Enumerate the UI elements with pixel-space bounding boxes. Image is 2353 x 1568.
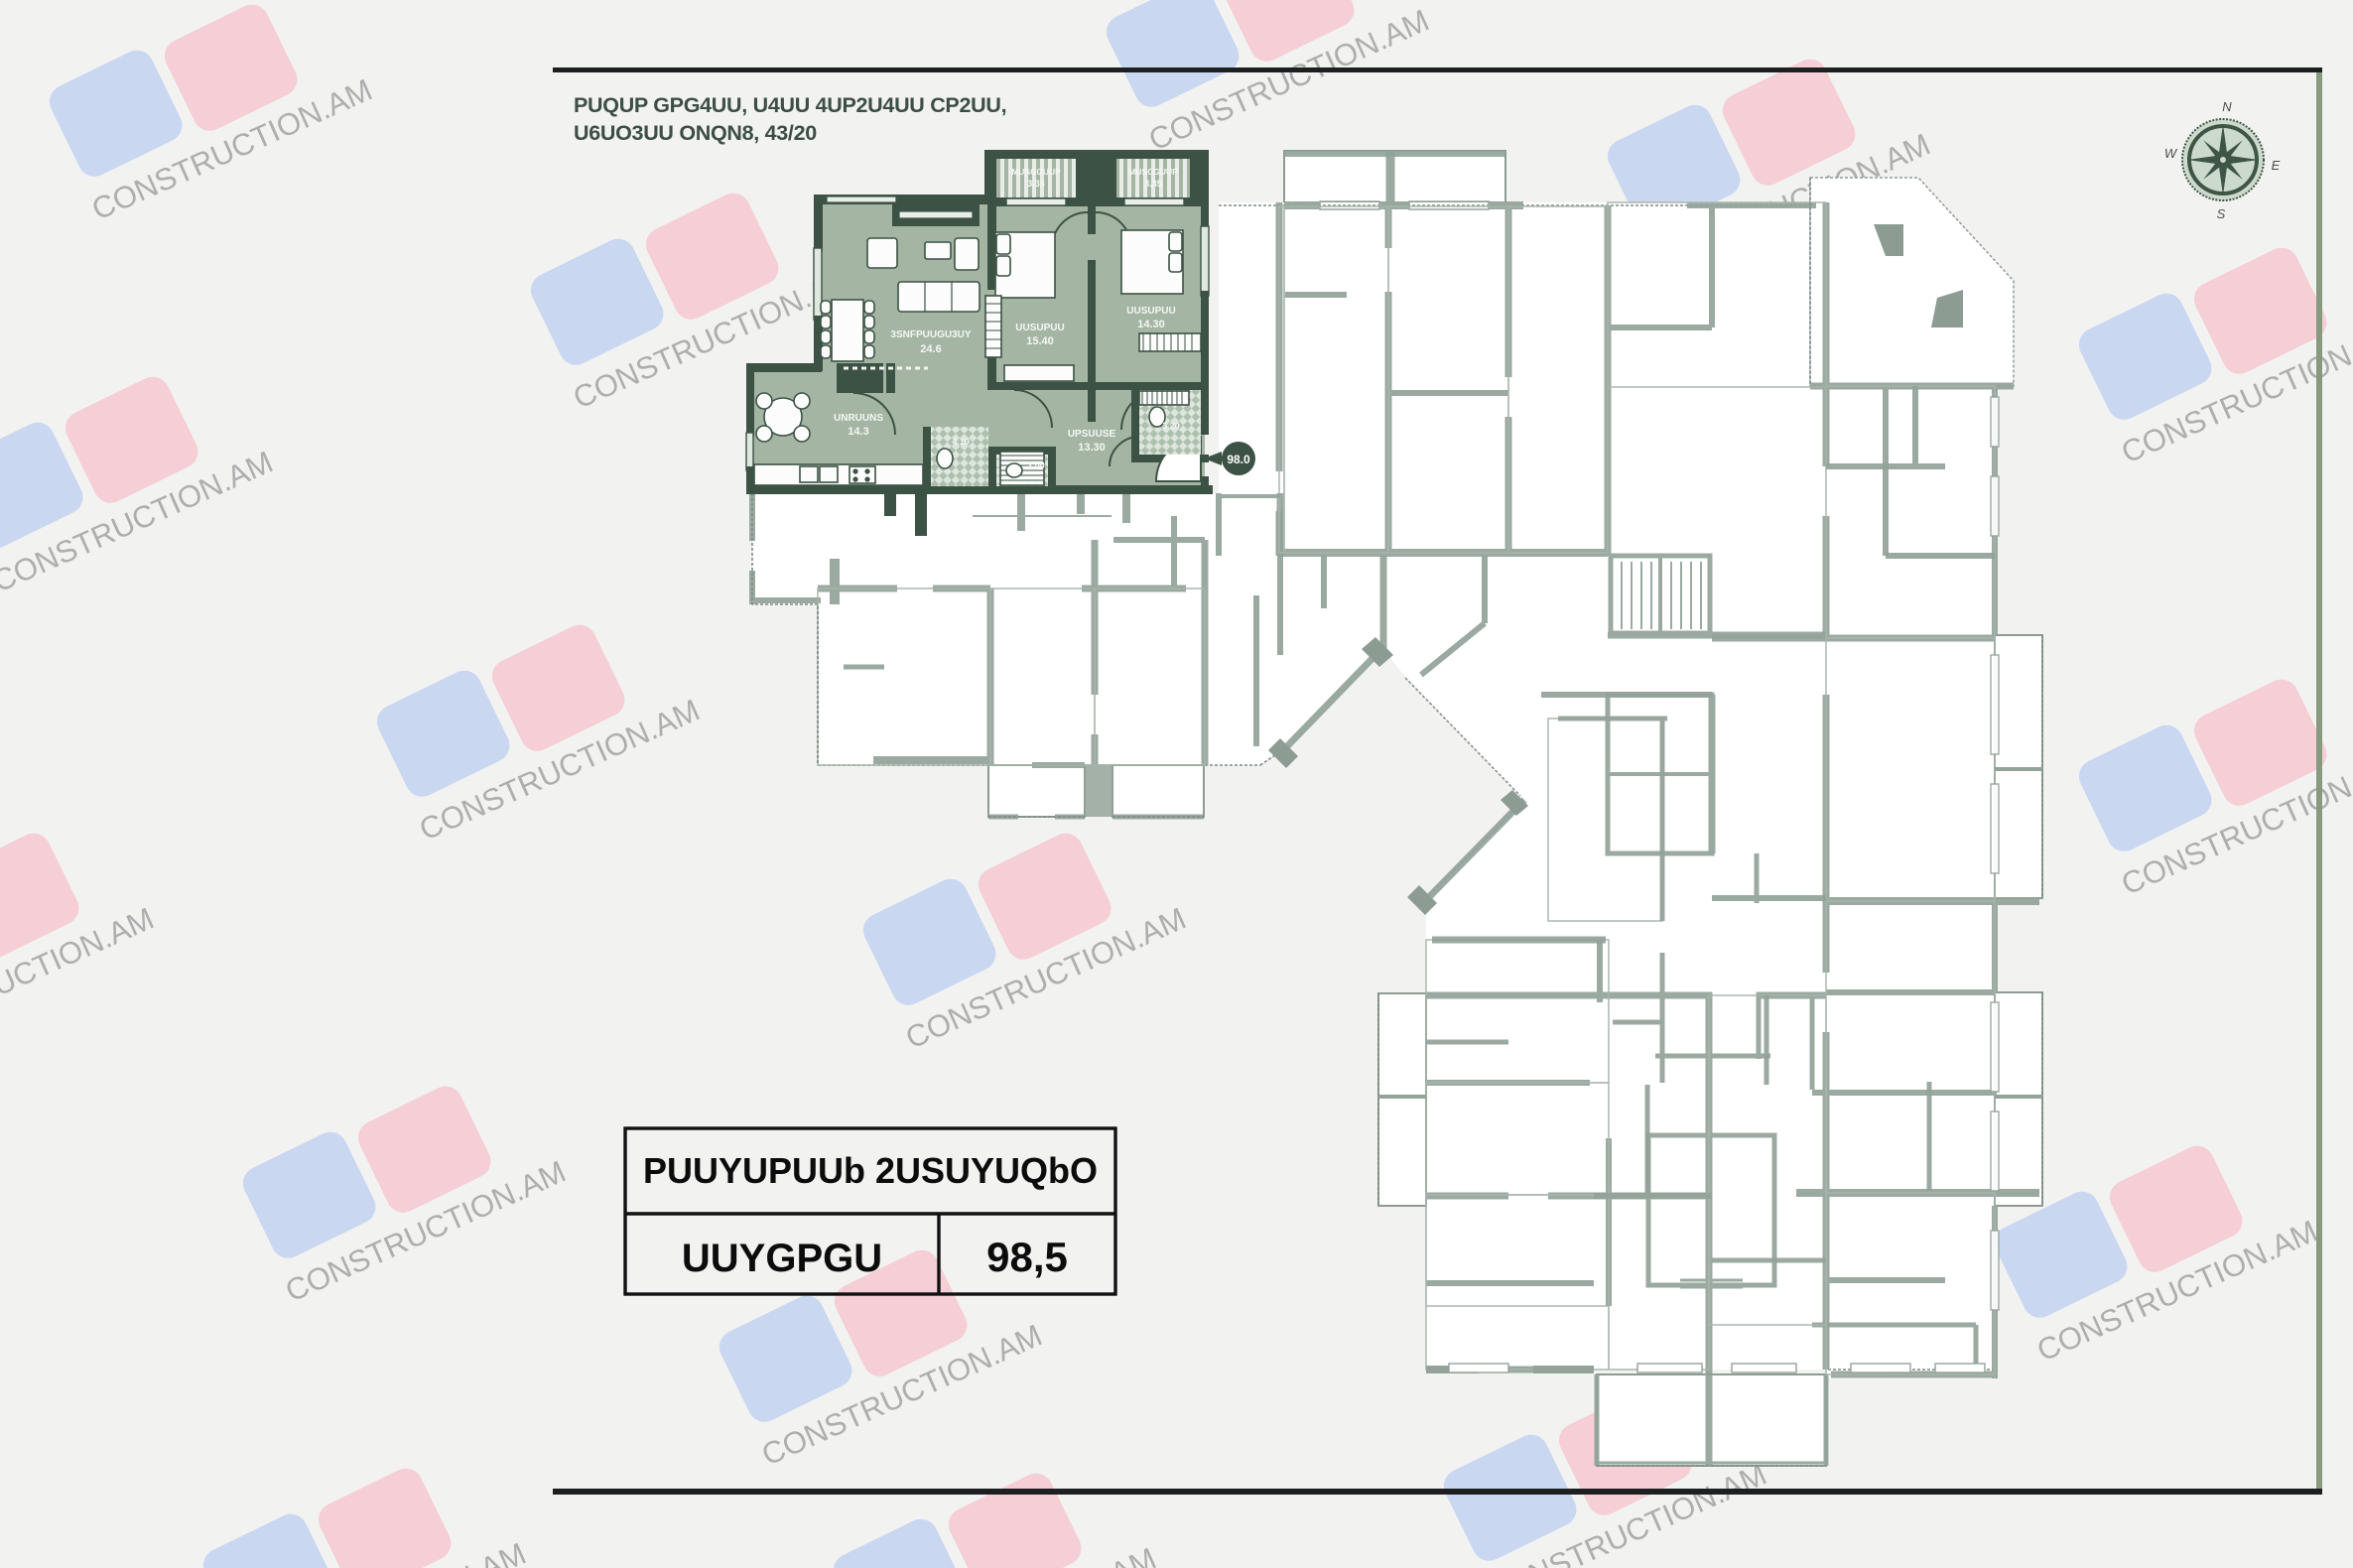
svg-text:13.30: 13.30 xyxy=(1078,442,1106,454)
svg-text:14.3: 14.3 xyxy=(848,426,868,438)
svg-text:UUSUPUU: UUSUPUU xyxy=(1015,323,1064,333)
svg-text:3SNFPUUGU3UY: 3SNFPUUGU3UY xyxy=(890,329,971,340)
svg-text:4.10: 4.10 xyxy=(952,437,970,447)
svg-text:14.30: 14.30 xyxy=(1137,319,1165,330)
svg-text:PUQUP GPG4UU, U4UU 4UP2U4UU CP: PUQUP GPG4UU, U4UU 4UP2U4UU CP2UU, xyxy=(574,93,1006,117)
svg-text:3.20: 3.20 xyxy=(1162,421,1180,431)
svg-text:S: S xyxy=(2217,206,2226,221)
svg-text:UNRUUNS: UNRUUNS xyxy=(834,413,883,424)
svg-text:N: N xyxy=(2222,99,2232,114)
svg-text:98,5: 98,5 xyxy=(986,1234,1068,1280)
svg-text:UUSUPUU: UUSUPUU xyxy=(1126,306,1175,317)
svg-text:3.35: 3.35 xyxy=(1144,179,1162,189)
svg-text:2.00: 2.00 xyxy=(1027,460,1045,470)
svg-text:PUUYUPUUb 2USUYUQbO: PUUYUPUUb 2USUYUQbO xyxy=(643,1150,1098,1191)
svg-text:24.6: 24.6 xyxy=(920,343,941,355)
svg-text:98.0: 98.0 xyxy=(1227,453,1250,466)
svg-text:15.40: 15.40 xyxy=(1026,335,1054,347)
svg-text:W: W xyxy=(2164,146,2178,161)
svg-text:3.35: 3.35 xyxy=(1027,179,1045,189)
svg-text:E: E xyxy=(2272,158,2281,173)
svg-text:MUSCGUUP: MUSCGUUP xyxy=(1128,167,1178,177)
svg-text:UUYGPGU: UUYGPGU xyxy=(682,1237,882,1280)
svg-text:UPSUUSE: UPSUUSE xyxy=(1068,429,1116,440)
svg-text:MUSCGUUP: MUSCGUUP xyxy=(1011,167,1061,177)
svg-text:U6UO3UU ONQN8, 43/20: U6UO3UU ONQN8, 43/20 xyxy=(574,121,817,145)
